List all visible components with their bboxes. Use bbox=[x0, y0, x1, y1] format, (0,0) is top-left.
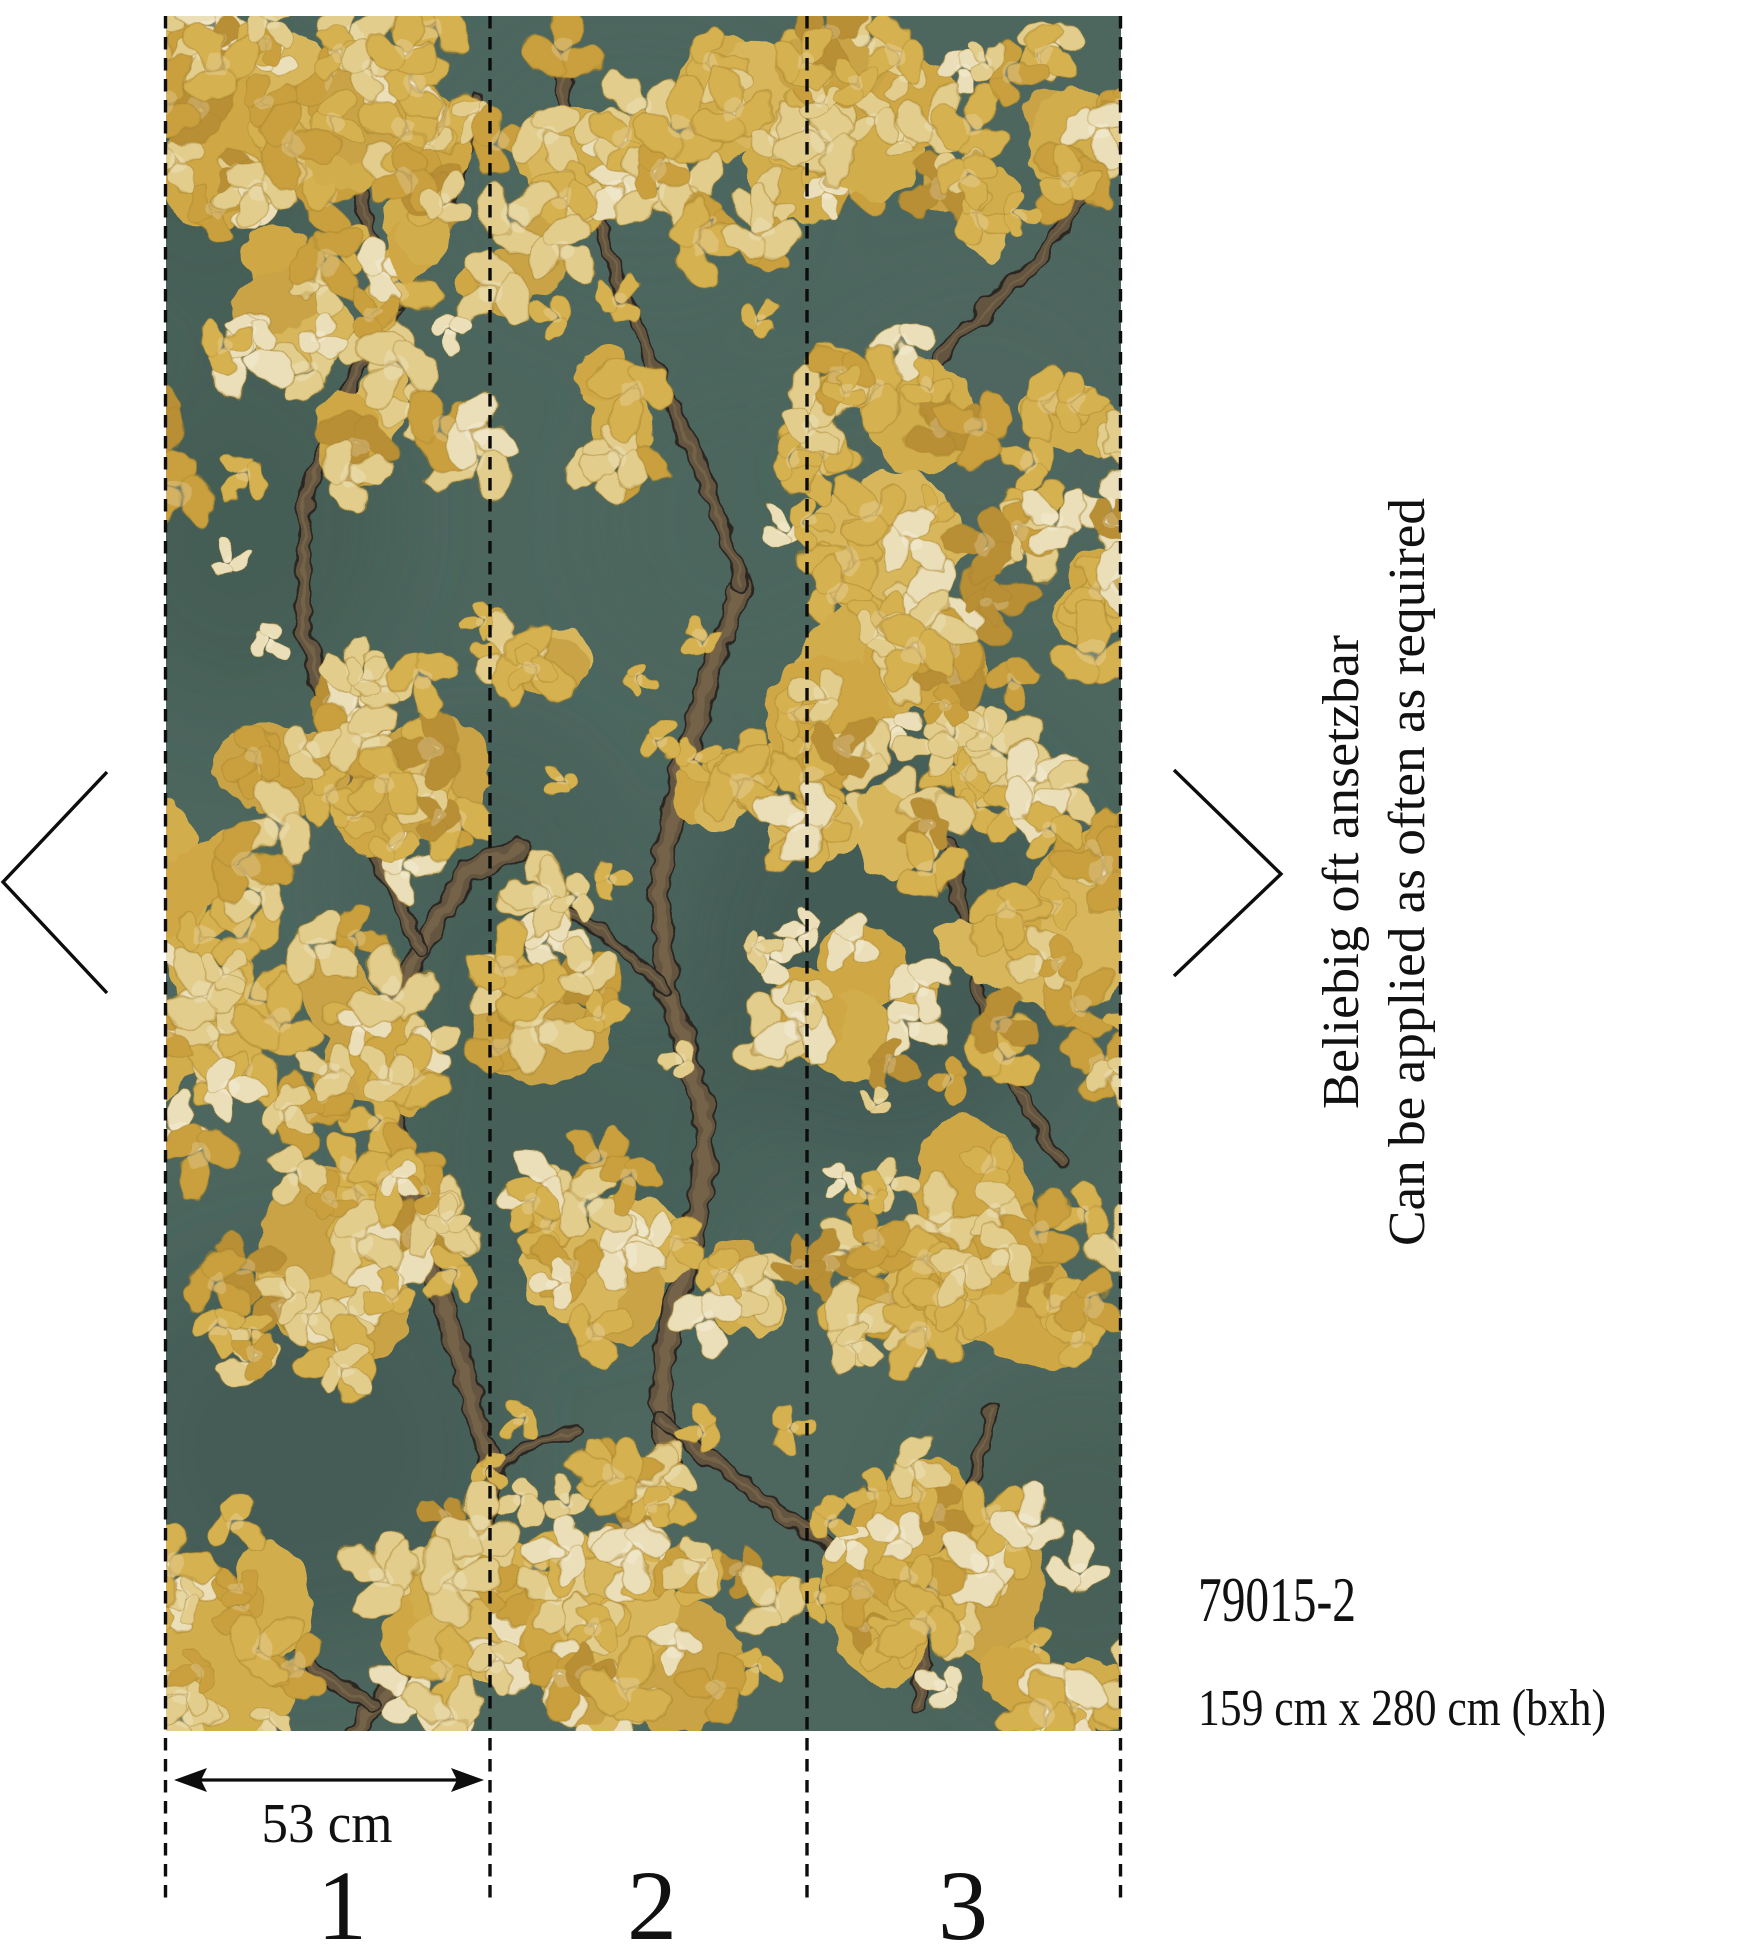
svg-text:3: 3 bbox=[938, 1850, 988, 1960]
svg-text:79015-2: 79015-2 bbox=[1198, 1564, 1356, 1635]
svg-text:Can be applied as often as req: Can be applied as often as required bbox=[1379, 498, 1436, 1246]
svg-text:Beliebig oft ansetzbar: Beliebig oft ansetzbar bbox=[1313, 635, 1370, 1109]
svg-text:53 cm: 53 cm bbox=[262, 1793, 393, 1855]
svg-text:159 cm x 280 cm (bxh): 159 cm x 280 cm (bxh) bbox=[1198, 1680, 1606, 1737]
svg-text:2: 2 bbox=[627, 1850, 677, 1960]
svg-text:1: 1 bbox=[317, 1850, 367, 1960]
